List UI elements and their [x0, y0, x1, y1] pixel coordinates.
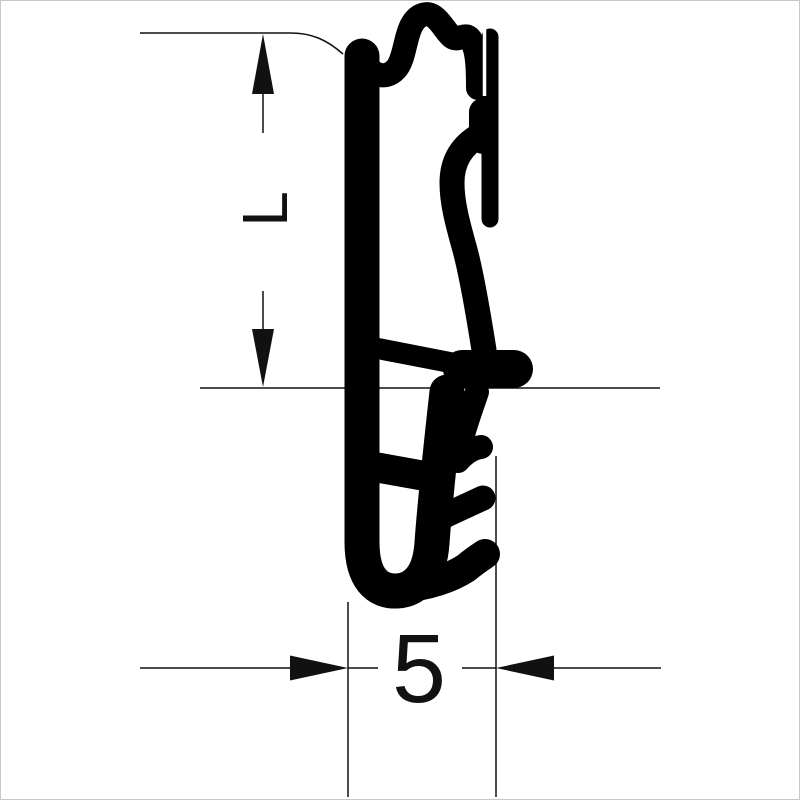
- reference-lines: [140, 33, 660, 388]
- top-reference-line: [140, 33, 343, 54]
- arrow-right-icon: [290, 656, 348, 681]
- profile-s-branch: [452, 135, 484, 350]
- seal-profile-shape: [359, 14, 514, 591]
- arrow-left-icon: [496, 656, 554, 681]
- arrow-up-icon: [252, 34, 274, 94]
- arrow-down-icon: [252, 329, 274, 387]
- profile-rung: [369, 466, 436, 478]
- height-dimension-label: L: [229, 191, 301, 227]
- seal-profile-drawing: L 5: [0, 0, 800, 800]
- width-dimension-label: 5: [392, 614, 446, 723]
- height-dimension: L: [229, 34, 301, 387]
- profile-fin-upper: [458, 392, 481, 461]
- width-dimension: 5: [140, 456, 661, 797]
- technical-drawing-canvas: L 5: [0, 0, 800, 800]
